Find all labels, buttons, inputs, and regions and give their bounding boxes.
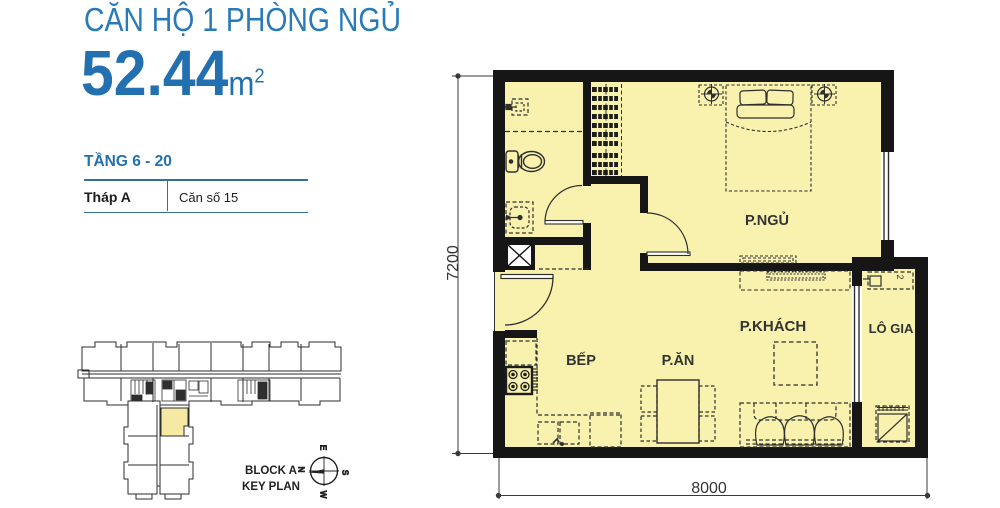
svg-text:BẾP: BẾP	[566, 352, 596, 369]
svg-text:BLOCK A: BLOCK A	[245, 465, 297, 477]
svg-text:P.ĂN: P.ĂN	[662, 352, 695, 369]
svg-text:N: N	[297, 467, 306, 473]
svg-text:W: W	[319, 491, 328, 499]
svg-text:LÔ GIA: LÔ GIA	[869, 321, 914, 336]
svg-text:S: S	[341, 470, 350, 475]
svg-text:KEY PLAN: KEY PLAN	[242, 481, 300, 493]
svg-text:2: 2	[895, 274, 905, 279]
svg-text:P.NGỦ: P.NGỦ	[745, 211, 789, 229]
svg-text:8000: 8000	[691, 480, 727, 497]
svg-text:7200: 7200	[445, 245, 462, 281]
svg-text:P.KHÁCH: P.KHÁCH	[740, 318, 806, 335]
svg-text:E: E	[319, 445, 328, 450]
